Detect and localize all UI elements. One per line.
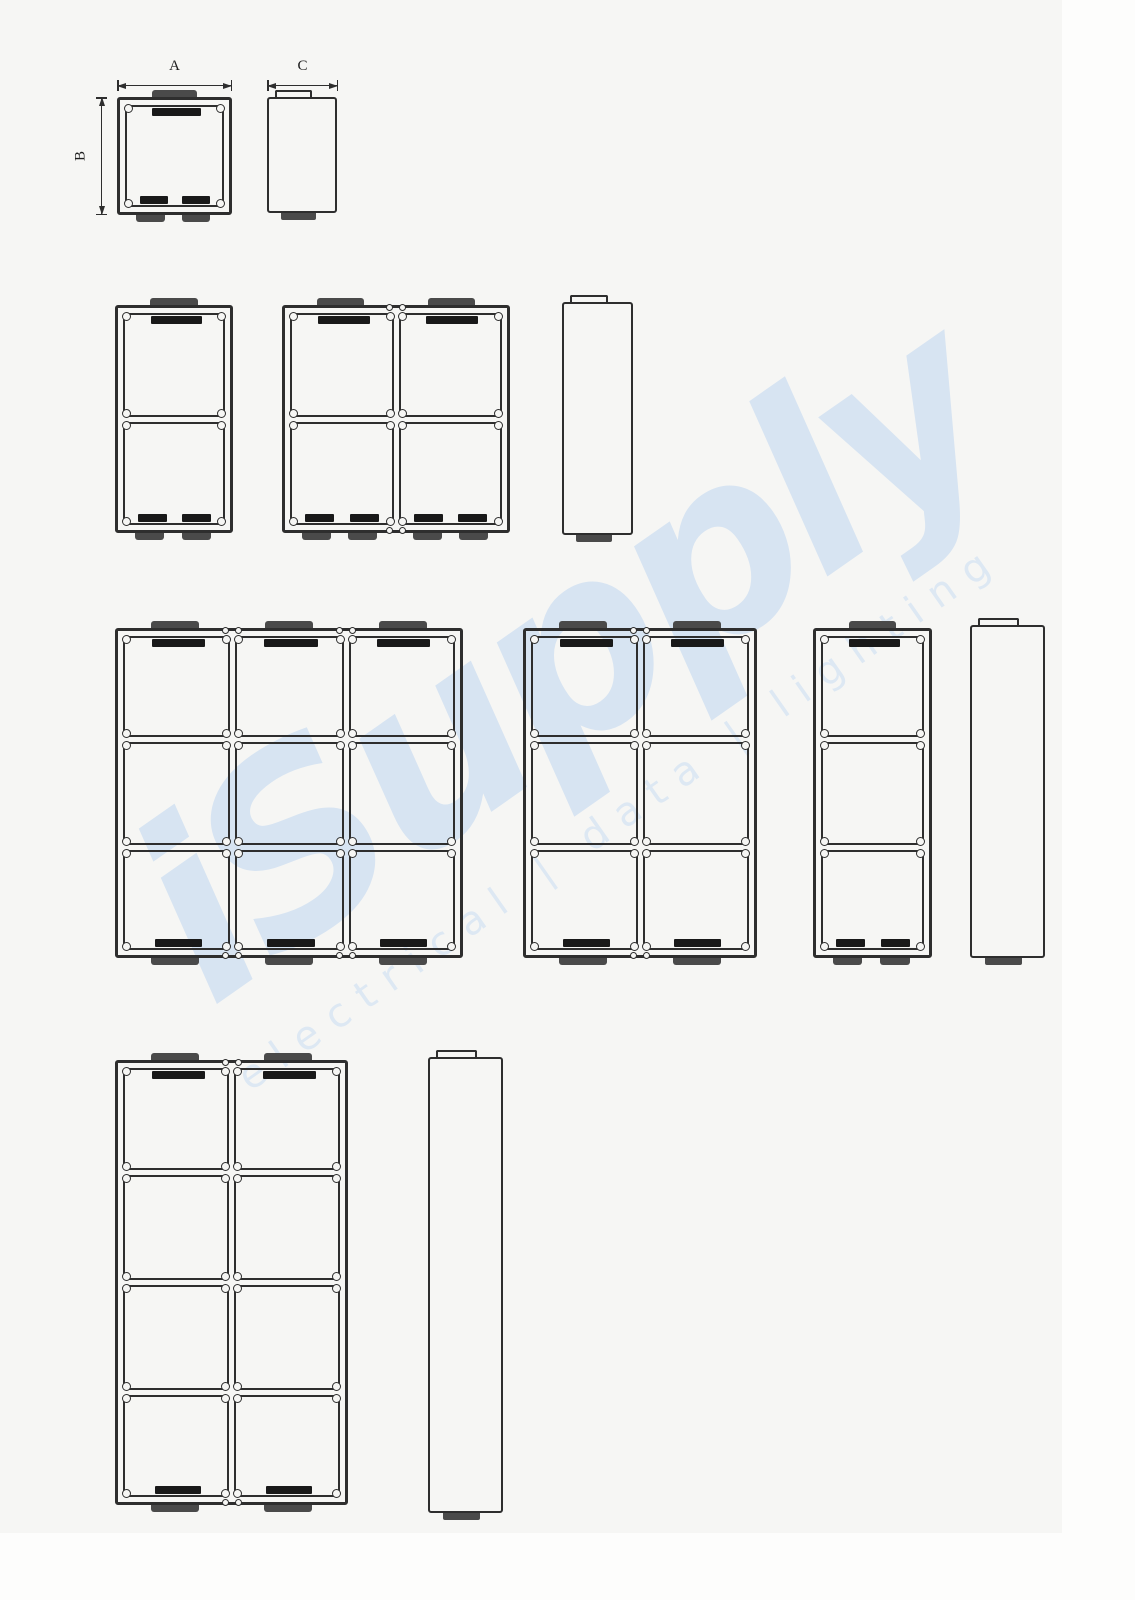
corner-screw-hole <box>348 741 357 750</box>
corner-screw-hole <box>122 1382 131 1391</box>
module-cell <box>531 636 638 737</box>
corner-screw-hole <box>642 635 651 644</box>
corner-screw-hole <box>222 942 231 951</box>
corner-screw-hole <box>820 942 829 951</box>
corner-screw-hole <box>630 635 639 644</box>
joint-screw-hole <box>336 627 343 634</box>
corner-screw-hole <box>447 849 456 858</box>
mounting-tab-top <box>152 90 198 97</box>
corner-screw-hole <box>221 1284 230 1293</box>
corner-screw-hole <box>124 104 133 113</box>
corner-screw-hole <box>386 517 395 526</box>
corner-screw-hole <box>916 741 925 750</box>
corner-screw-hole <box>332 1174 341 1183</box>
corner-screw-hole <box>447 942 456 951</box>
corner-screw-hole <box>530 942 539 951</box>
joint-screw-hole <box>222 627 229 634</box>
corner-screw-hole <box>289 517 298 526</box>
device-slot-bottom <box>305 514 334 522</box>
gang-box-1x2 <box>115 305 233 533</box>
joint-screw-hole <box>336 952 343 959</box>
mounting-tab-top <box>379 621 427 628</box>
corner-screw-hole <box>217 409 226 418</box>
gang-box-3x3 <box>115 628 463 958</box>
joint-screw-hole <box>235 1499 242 1506</box>
mounting-tab-bottom <box>151 1505 199 1512</box>
module-cell <box>531 742 638 845</box>
corner-screw-hole <box>234 942 243 951</box>
corner-screw-hole <box>233 1382 242 1391</box>
side-tab-bottom <box>576 535 612 542</box>
corner-screw-hole <box>336 849 345 858</box>
mounting-tab-top <box>428 298 475 305</box>
corner-screw-hole <box>741 942 750 951</box>
device-slot-top <box>264 639 319 647</box>
corner-screw-hole <box>916 729 925 738</box>
corner-screw-hole <box>289 312 298 321</box>
corner-screw-hole <box>398 421 407 430</box>
corner-screw-hole <box>222 729 231 738</box>
module-cell <box>234 1285 340 1390</box>
module-cell <box>821 636 924 737</box>
corner-screw-hole <box>530 849 539 858</box>
mounting-tab-top <box>151 1053 199 1060</box>
corner-screw-hole <box>916 942 925 951</box>
module-cell <box>234 1175 340 1280</box>
corner-screw-hole <box>386 421 395 430</box>
corner-screw-hole <box>447 635 456 644</box>
mounting-tab-top <box>264 1053 312 1060</box>
side-view-4-high <box>428 1057 503 1513</box>
corner-screw-hole <box>122 942 131 951</box>
mounting-tab-bottom <box>413 533 442 540</box>
module-cell <box>234 1395 340 1497</box>
side-tab-top <box>978 618 1019 625</box>
module-cell <box>643 742 750 845</box>
corner-screw-hole <box>122 1394 131 1403</box>
corner-screw-hole <box>217 517 226 526</box>
corner-screw-hole <box>332 1162 341 1171</box>
corner-screw-hole <box>530 837 539 846</box>
corner-screw-hole <box>916 849 925 858</box>
corner-screw-hole <box>221 1489 230 1498</box>
module-cell <box>531 850 638 951</box>
side-view-3-high <box>970 625 1045 958</box>
mounting-tab-top <box>265 621 313 628</box>
module-cell <box>349 742 456 845</box>
corner-screw-hole <box>332 1272 341 1281</box>
corner-screw-hole <box>494 409 503 418</box>
module-cell <box>290 422 394 526</box>
device-slot-top <box>318 316 370 324</box>
module-cell <box>123 313 225 417</box>
corner-screw-hole <box>398 517 407 526</box>
mounting-tab-top <box>317 298 364 305</box>
corner-screw-hole <box>216 199 225 208</box>
device-slot-top <box>263 1071 316 1079</box>
device-slot-bottom <box>836 939 865 947</box>
corner-screw-hole <box>447 729 456 738</box>
corner-screw-hole <box>233 1489 242 1498</box>
corner-screw-hole <box>348 635 357 644</box>
corner-screw-hole <box>332 1382 341 1391</box>
joint-screw-hole <box>235 952 242 959</box>
corner-screw-hole <box>348 837 357 846</box>
joint-screw-hole <box>222 952 229 959</box>
module-cell <box>123 1175 229 1280</box>
joint-screw-hole <box>235 627 242 634</box>
corner-screw-hole <box>642 837 651 846</box>
device-slot-bottom <box>563 939 610 947</box>
module-cell <box>123 422 225 526</box>
gang-box-1x3 <box>813 628 932 958</box>
mounting-tab-top <box>559 621 607 628</box>
corner-screw-hole <box>741 729 750 738</box>
corner-screw-hole <box>447 837 456 846</box>
corner-screw-hole <box>642 849 651 858</box>
module-cell <box>643 850 750 951</box>
side-tab-top <box>570 295 608 302</box>
corner-screw-hole <box>642 729 651 738</box>
mounting-tab-bottom <box>264 1505 312 1512</box>
module-cell <box>643 636 750 737</box>
module-cell <box>123 850 230 951</box>
corner-screw-hole <box>234 729 243 738</box>
mounting-tab-bottom <box>880 958 909 965</box>
mounting-tab-bottom <box>136 215 164 222</box>
corner-screw-hole <box>530 741 539 750</box>
module-cell <box>123 1285 229 1390</box>
corner-screw-hole <box>221 1272 230 1281</box>
corner-screw-hole <box>741 849 750 858</box>
corner-screw-hole <box>494 312 503 321</box>
device-slot-bottom <box>881 939 910 947</box>
joint-screw-hole <box>386 304 393 311</box>
catalog-page: iSupply electrical | data | lighting A C… <box>0 0 1135 1600</box>
device-slot-bottom <box>266 1486 313 1494</box>
corner-screw-hole <box>122 409 131 418</box>
corner-screw-hole <box>122 1284 131 1293</box>
corner-screw-hole <box>348 729 357 738</box>
corner-screw-hole <box>630 849 639 858</box>
module-cell <box>399 422 503 526</box>
joint-screw-hole <box>222 1059 229 1066</box>
corner-screw-hole <box>217 312 226 321</box>
module-cell <box>234 1068 340 1170</box>
mounting-tab-bottom <box>348 533 377 540</box>
corner-screw-hole <box>336 837 345 846</box>
mounting-tab-bottom <box>265 958 313 965</box>
corner-screw-hole <box>630 942 639 951</box>
device-slot-bottom <box>182 514 211 522</box>
corner-screw-hole <box>122 729 131 738</box>
corner-screw-hole <box>233 1272 242 1281</box>
joint-screw-hole <box>235 1059 242 1066</box>
corner-screw-hole <box>398 312 407 321</box>
mounting-tab-bottom <box>559 958 607 965</box>
corner-screw-hole <box>221 1382 230 1391</box>
corner-screw-hole <box>122 635 131 644</box>
device-slot-bottom <box>155 1486 202 1494</box>
module-cell <box>290 313 394 417</box>
module-cell <box>123 1395 229 1497</box>
figures-layer <box>0 0 1135 1600</box>
device-slot-bottom <box>380 939 427 947</box>
corner-screw-hole <box>336 741 345 750</box>
device-slot-bottom <box>458 514 487 522</box>
corner-screw-hole <box>289 409 298 418</box>
device-slot-top <box>152 1071 205 1079</box>
module-cell <box>821 742 924 845</box>
device-slot-top <box>152 108 202 116</box>
module-cell <box>235 742 344 845</box>
device-slot-top <box>151 316 202 324</box>
device-slot-bottom <box>414 514 443 522</box>
corner-screw-hole <box>122 741 131 750</box>
device-slot-top <box>849 639 901 647</box>
corner-screw-hole <box>222 741 231 750</box>
joint-screw-hole <box>630 952 637 959</box>
corner-screw-hole <box>820 635 829 644</box>
mounting-tab-bottom <box>182 533 211 540</box>
corner-screw-hole <box>122 1272 131 1281</box>
corner-screw-hole <box>289 421 298 430</box>
corner-screw-hole <box>398 409 407 418</box>
corner-screw-hole <box>122 1174 131 1183</box>
mounting-tab-bottom <box>151 958 199 965</box>
corner-screw-hole <box>332 1489 341 1498</box>
corner-screw-hole <box>741 837 750 846</box>
corner-screw-hole <box>124 199 133 208</box>
corner-screw-hole <box>221 1394 230 1403</box>
corner-screw-hole <box>386 409 395 418</box>
corner-screw-hole <box>122 1067 131 1076</box>
side-tab-bottom <box>443 1513 481 1520</box>
mounting-tab-top <box>849 621 896 628</box>
module-cell <box>123 636 230 737</box>
side-view-2-high <box>562 302 633 535</box>
corner-screw-hole <box>348 849 357 858</box>
mounting-tab-bottom <box>833 958 862 965</box>
gang-box-1x1 <box>117 97 232 215</box>
side-tab-top <box>436 1050 477 1057</box>
corner-screw-hole <box>630 837 639 846</box>
corner-screw-hole <box>122 421 131 430</box>
corner-screw-hole <box>820 741 829 750</box>
device-slot-top <box>377 639 430 647</box>
device-slot-bottom <box>138 514 167 522</box>
corner-screw-hole <box>348 942 357 951</box>
device-slot-top <box>671 639 724 647</box>
corner-screw-hole <box>222 635 231 644</box>
corner-screw-hole <box>916 635 925 644</box>
corner-screw-hole <box>222 837 231 846</box>
corner-screw-hole <box>630 741 639 750</box>
mounting-tab-top <box>673 621 721 628</box>
corner-screw-hole <box>386 312 395 321</box>
device-slot-bottom <box>155 939 202 947</box>
corner-screw-hole <box>122 1489 131 1498</box>
joint-screw-hole <box>386 527 393 534</box>
module-cell <box>125 105 224 207</box>
module-cell <box>349 850 456 951</box>
corner-screw-hole <box>222 849 231 858</box>
side-tab-bottom <box>281 213 316 220</box>
corner-screw-hole <box>233 1067 242 1076</box>
corner-screw-hole <box>820 849 829 858</box>
side-tab-bottom <box>985 958 1023 965</box>
corner-screw-hole <box>820 729 829 738</box>
corner-screw-hole <box>332 1284 341 1293</box>
mounting-tab-top <box>150 298 197 305</box>
mounting-tab-bottom <box>135 533 164 540</box>
corner-screw-hole <box>233 1174 242 1183</box>
corner-screw-hole <box>820 837 829 846</box>
device-slot-bottom <box>140 196 168 204</box>
module-cell <box>821 850 924 951</box>
corner-screw-hole <box>447 741 456 750</box>
corner-screw-hole <box>741 635 750 644</box>
corner-screw-hole <box>221 1162 230 1171</box>
corner-screw-hole <box>221 1067 230 1076</box>
joint-screw-hole <box>349 627 356 634</box>
device-slot-top <box>426 316 478 324</box>
mounting-tab-bottom <box>379 958 427 965</box>
mounting-tab-bottom <box>459 533 488 540</box>
corner-screw-hole <box>530 729 539 738</box>
mounting-tab-bottom <box>302 533 331 540</box>
joint-screw-hole <box>222 1499 229 1506</box>
module-cell <box>123 1068 229 1170</box>
joint-screw-hole <box>349 952 356 959</box>
joint-screw-hole <box>399 527 406 534</box>
corner-screw-hole <box>233 1162 242 1171</box>
gang-box-2x3 <box>523 628 757 958</box>
module-cell <box>399 313 503 417</box>
mounting-tab-bottom <box>673 958 721 965</box>
corner-screw-hole <box>216 104 225 113</box>
corner-screw-hole <box>221 1174 230 1183</box>
joint-screw-hole <box>630 627 637 634</box>
corner-screw-hole <box>916 837 925 846</box>
corner-screw-hole <box>122 837 131 846</box>
corner-screw-hole <box>234 837 243 846</box>
corner-screw-hole <box>494 517 503 526</box>
corner-screw-hole <box>642 942 651 951</box>
corner-screw-hole <box>234 849 243 858</box>
corner-screw-hole <box>336 942 345 951</box>
corner-screw-hole <box>332 1067 341 1076</box>
corner-screw-hole <box>122 1162 131 1171</box>
side-tab-top <box>275 90 313 97</box>
corner-screw-hole <box>217 421 226 430</box>
device-slot-top <box>560 639 613 647</box>
gang-box-2x2 <box>282 305 510 533</box>
joint-screw-hole <box>399 304 406 311</box>
device-slot-bottom <box>674 939 721 947</box>
joint-screw-hole <box>643 952 650 959</box>
corner-screw-hole <box>336 635 345 644</box>
device-slot-bottom <box>350 514 379 522</box>
corner-screw-hole <box>233 1394 242 1403</box>
mounting-tab-bottom <box>182 215 210 222</box>
corner-screw-hole <box>122 517 131 526</box>
joint-screw-hole <box>643 627 650 634</box>
side-view-1-gang <box>267 97 337 213</box>
corner-screw-hole <box>336 729 345 738</box>
corner-screw-hole <box>234 741 243 750</box>
corner-screw-hole <box>234 635 243 644</box>
module-cell <box>235 636 344 737</box>
corner-screw-hole <box>332 1394 341 1403</box>
corner-screw-hole <box>122 849 131 858</box>
corner-screw-hole <box>642 741 651 750</box>
module-cell <box>123 742 230 845</box>
mounting-tab-top <box>151 621 199 628</box>
corner-screw-hole <box>530 635 539 644</box>
corner-screw-hole <box>122 312 131 321</box>
module-cell <box>235 850 344 951</box>
corner-screw-hole <box>494 421 503 430</box>
module-cell <box>349 636 456 737</box>
corner-screw-hole <box>741 741 750 750</box>
gang-box-2x4 <box>115 1060 348 1505</box>
device-slot-top <box>152 639 205 647</box>
device-slot-bottom <box>182 196 210 204</box>
corner-screw-hole <box>233 1284 242 1293</box>
corner-screw-hole <box>630 729 639 738</box>
device-slot-bottom <box>267 939 315 947</box>
